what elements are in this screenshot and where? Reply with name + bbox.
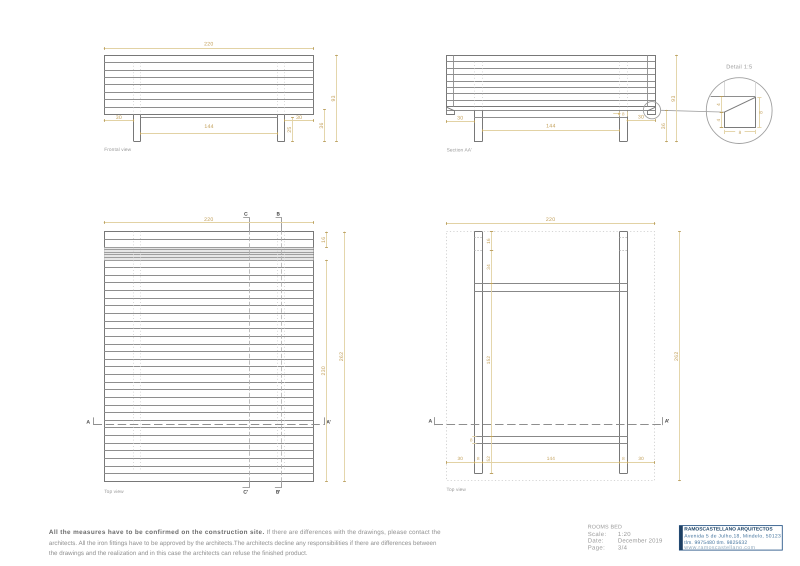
svg-text:16: 16 <box>486 238 491 244</box>
svg-text:8: 8 <box>758 111 763 114</box>
svg-text:30: 30 <box>638 456 644 461</box>
svg-text:Page:: Page: <box>588 544 605 551</box>
svg-text:93: 93 <box>671 95 677 101</box>
svg-text:Section AA': Section AA' <box>447 148 472 154</box>
svg-text:34: 34 <box>486 264 491 270</box>
svg-text:4: 4 <box>716 103 721 106</box>
svg-text:230: 230 <box>321 366 327 376</box>
svg-text:220: 220 <box>204 217 214 223</box>
svg-text:Avenida 5 de Julho,18, Mindelo: Avenida 5 de Julho,18, Mindelo, 50123 <box>684 533 781 539</box>
svg-text:1:20: 1:20 <box>618 531 631 538</box>
svg-text:30: 30 <box>638 115 644 121</box>
svg-text:93: 93 <box>331 95 337 101</box>
svg-text:52: 52 <box>486 456 491 462</box>
svg-text:36: 36 <box>319 122 325 128</box>
svg-text:C: C <box>244 212 248 218</box>
svg-text:262: 262 <box>674 351 680 361</box>
svg-text:www.ramoscastellano.com: www.ramoscastellano.com <box>684 545 755 551</box>
svg-text:220: 220 <box>204 42 214 48</box>
svg-text:3/4: 3/4 <box>618 544 628 551</box>
svg-text:C': C' <box>243 490 247 496</box>
svg-text:Date:: Date: <box>588 538 604 545</box>
svg-text:ROOMS BED: ROOMS BED <box>588 525 622 531</box>
svg-text:30: 30 <box>457 115 463 121</box>
svg-text:A': A' <box>665 419 669 425</box>
svg-text:220: 220 <box>546 217 556 223</box>
svg-text:144: 144 <box>547 456 556 461</box>
svg-text:16: 16 <box>321 237 327 243</box>
svg-text:30: 30 <box>457 456 463 461</box>
svg-text:B': B' <box>276 490 280 496</box>
svg-text:144: 144 <box>204 124 214 130</box>
svg-text:4: 4 <box>716 119 721 122</box>
svg-text:25: 25 <box>287 126 293 132</box>
svg-text:B: B <box>277 212 280 218</box>
svg-text:262: 262 <box>339 352 345 362</box>
svg-text:Top view: Top view <box>447 487 467 493</box>
svg-text:30: 30 <box>116 115 122 121</box>
svg-text:144: 144 <box>546 123 556 129</box>
svg-text:the drawings and the realizati: the drawings and the realization and in … <box>49 550 308 557</box>
svg-text:152: 152 <box>486 356 491 365</box>
svg-text:36: 36 <box>661 123 667 129</box>
svg-text:8: 8 <box>739 130 742 135</box>
svg-text:Scale:: Scale: <box>588 531 607 538</box>
svg-text:A': A' <box>327 419 331 425</box>
svg-text:Frontal view: Frontal view <box>104 147 131 153</box>
svg-text:Detail 1:5: Detail 1:5 <box>726 63 752 70</box>
svg-text:30: 30 <box>296 115 302 121</box>
svg-text:All the measures have to be co: All the measures have to be confirmed on… <box>49 529 441 536</box>
svg-text:Top view: Top view <box>104 489 124 495</box>
svg-text:December 2019: December 2019 <box>618 538 663 545</box>
svg-text:architects. All the iron fitti: architects. All the iron fittings have t… <box>49 540 437 547</box>
svg-text:RAMOSCASTELLANO ARQUITECTOS: RAMOSCASTELLANO ARQUITECTOS <box>684 526 773 532</box>
